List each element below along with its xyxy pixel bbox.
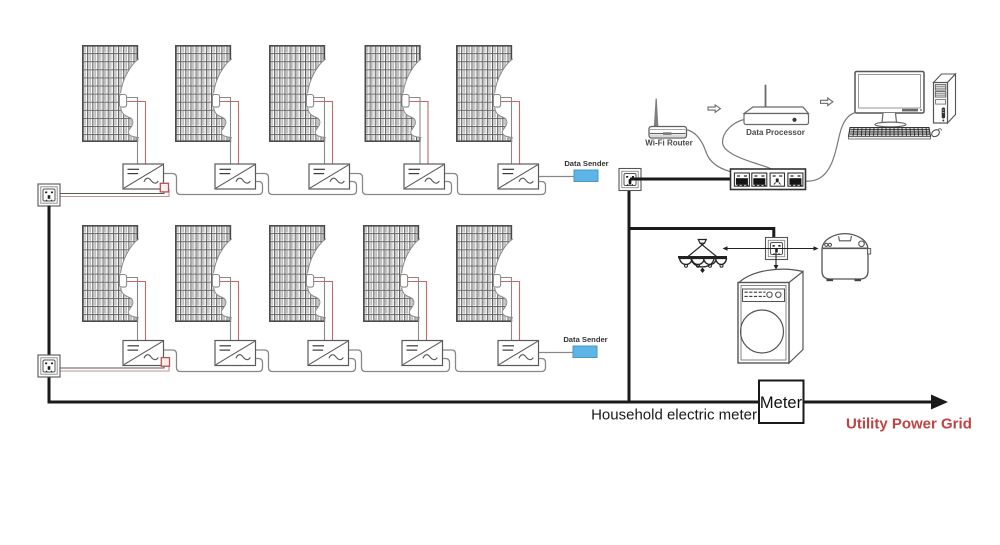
- svg-text:Data Sender: Data Sender: [563, 335, 607, 344]
- svg-text:Household electric meter: Household electric meter: [591, 407, 757, 424]
- svg-text:Wi-Fi Router: Wi-Fi Router: [645, 139, 692, 148]
- svg-text:Data Sender: Data Sender: [564, 159, 608, 168]
- svg-text:Data Processor: Data Processor: [746, 128, 805, 137]
- svg-text:Utility Power Grid: Utility Power Grid: [846, 416, 972, 433]
- svg-text:Meter: Meter: [760, 394, 803, 412]
